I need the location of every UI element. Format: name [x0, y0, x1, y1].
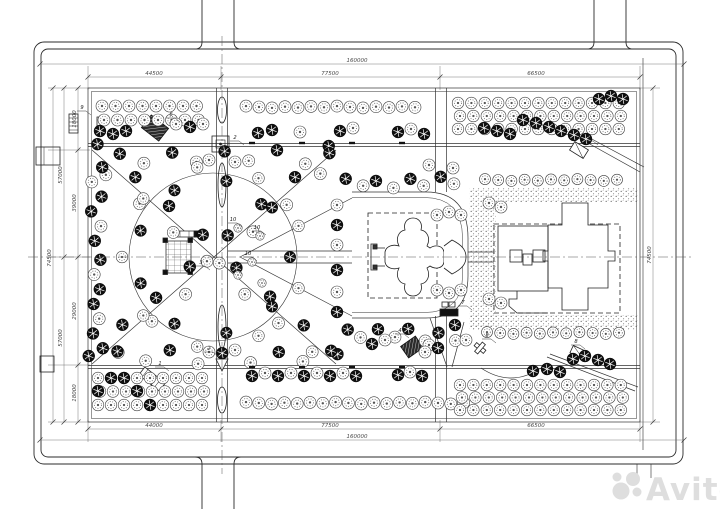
- tree-deciduous: [431, 209, 443, 221]
- tree-conifer: [554, 366, 566, 378]
- tree-conifer: [432, 327, 444, 339]
- dim-bottom-left: 44000: [145, 423, 163, 429]
- tree-deciduous: [481, 379, 493, 391]
- tree-deciduous: [537, 392, 549, 404]
- tree-deciduous: [266, 102, 278, 114]
- tree-deciduous: [357, 180, 369, 192]
- tree-deciduous: [191, 100, 203, 112]
- tree-deciduous: [448, 178, 460, 190]
- tree-conifer: [567, 353, 579, 365]
- tree-deciduous: [532, 175, 543, 186]
- tree-deciduous: [454, 404, 466, 416]
- tree-conifer: [298, 370, 310, 382]
- tree-deciduous: [447, 162, 459, 174]
- tree-deciduous: [183, 372, 195, 384]
- tree-conifer: [579, 350, 591, 362]
- gravel-band-left: [469, 188, 496, 330]
- tree-deciduous: [150, 100, 162, 112]
- tree-conifer: [97, 342, 109, 354]
- tree-deciduous: [483, 392, 495, 404]
- tree-conifer: [402, 323, 414, 335]
- svg-text:3: 3: [199, 260, 202, 266]
- tree-deciduous: [118, 399, 130, 411]
- tree-deciduous: [455, 209, 467, 221]
- tree-deciduous: [311, 367, 323, 379]
- tree-deciduous: [164, 100, 176, 112]
- narthex-tower: [373, 265, 377, 269]
- tree-conifer: [252, 127, 264, 139]
- tree-conifer: [118, 372, 130, 384]
- tree-deciduous: [494, 379, 506, 391]
- tree-conifer: [273, 346, 285, 358]
- dim-bottom-total: 160000: [347, 434, 368, 440]
- bench: [399, 142, 405, 144]
- tree-deciduous: [137, 310, 149, 322]
- dim-top-left: 44500: [145, 71, 163, 77]
- svg-text:8: 8: [574, 339, 578, 345]
- tree-conifer: [593, 93, 605, 105]
- avito-logo-dot: [633, 488, 642, 497]
- tree-conifer: [568, 129, 580, 141]
- tree-conifer: [150, 292, 162, 304]
- tree-deciduous: [347, 122, 359, 134]
- tree-deciduous: [213, 257, 225, 269]
- tree-deciduous: [452, 97, 464, 109]
- tree-deciduous: [419, 346, 431, 358]
- tree-deciduous: [600, 328, 611, 339]
- tree-conifer: [617, 93, 629, 105]
- tree-deciduous: [281, 199, 293, 211]
- tree-deciduous: [240, 396, 252, 408]
- tree-deciduous: [297, 355, 309, 367]
- tree-deciduous: [253, 101, 265, 113]
- tree-deciduous: [548, 379, 560, 391]
- tree-deciduous: [449, 335, 461, 347]
- tree-deciduous: [615, 404, 627, 416]
- tree-deciduous: [317, 397, 329, 409]
- pavilion-kiosk-center: [220, 143, 222, 145]
- tree-deciduous: [409, 101, 421, 113]
- tree-conifer: [222, 229, 234, 241]
- tree-conifer: [105, 372, 117, 384]
- tree-conifer: [111, 345, 123, 357]
- tree-conifer: [366, 338, 378, 350]
- avito-logo-dot: [613, 483, 630, 500]
- stage-platform: [440, 309, 458, 316]
- tree-conifer: [246, 370, 258, 382]
- bench: [299, 142, 305, 144]
- tree-deciduous: [588, 404, 600, 416]
- svg-text:10: 10: [254, 225, 261, 231]
- tree-deciduous: [253, 330, 265, 342]
- tree-deciduous: [614, 327, 625, 338]
- tree-deciduous: [493, 175, 504, 186]
- bench: [249, 142, 255, 144]
- tree-conifer: [169, 185, 181, 197]
- tree-deciduous: [387, 182, 399, 194]
- dim-left-seg1: 18000: [72, 110, 78, 128]
- tree-conifer: [96, 161, 108, 173]
- tree-conifer: [221, 327, 233, 339]
- tree-conifer: [435, 171, 447, 183]
- tree-deciduous: [575, 379, 587, 391]
- dim-top-right: 66500: [527, 71, 545, 77]
- tree-deciduous: [337, 367, 349, 379]
- tree-deciduous: [304, 396, 316, 408]
- tree-deciduous: [479, 97, 491, 109]
- tree-deciduous: [548, 327, 559, 338]
- tree-deciduous: [234, 271, 242, 279]
- tree-deciduous: [253, 397, 265, 409]
- tree-conifer: [418, 128, 430, 140]
- bench: [299, 366, 305, 368]
- tree-conifer: [370, 175, 382, 187]
- tree-deciduous: [293, 220, 305, 232]
- tree-conifer: [478, 122, 490, 134]
- tree-conifer: [271, 144, 283, 156]
- palace-annex: [509, 291, 548, 313]
- svg-text:10: 10: [230, 217, 237, 223]
- tree-conifer: [527, 365, 539, 377]
- tree-deciduous: [590, 392, 602, 404]
- tree-conifer: [517, 114, 529, 126]
- tree-deciduous: [279, 101, 291, 113]
- tree-deciduous: [573, 97, 585, 109]
- tree-deciduous: [370, 101, 382, 113]
- tree-deciduous: [185, 386, 197, 398]
- tree-conifer: [323, 147, 335, 159]
- tree-deciduous: [170, 399, 182, 411]
- tree-deciduous: [137, 100, 149, 112]
- tree-deciduous: [203, 154, 215, 166]
- tree-deciduous: [344, 101, 356, 113]
- tree-conifer: [541, 363, 553, 375]
- tree-deciduous: [495, 201, 507, 213]
- tree-deciduous: [172, 386, 184, 398]
- tree-deciduous: [404, 366, 416, 378]
- tree-deciduous: [293, 282, 305, 294]
- tree-deciduous: [243, 155, 255, 167]
- svg-text:10: 10: [230, 264, 237, 270]
- tree-deciduous: [510, 392, 522, 404]
- tree-deciduous: [305, 100, 317, 112]
- bench: [399, 366, 405, 368]
- tree-deciduous: [331, 199, 343, 211]
- tree-deciduous: [253, 172, 265, 184]
- tree-conifer: [350, 370, 362, 382]
- tree-deciduous: [546, 174, 557, 185]
- tree-conifer: [107, 128, 119, 140]
- tree-deciduous: [468, 404, 480, 416]
- tree-conifer: [334, 125, 346, 137]
- tree-deciduous: [406, 397, 418, 409]
- tree-deciduous: [561, 379, 573, 391]
- tree-deciduous: [93, 313, 105, 325]
- tree-deciduous: [368, 397, 380, 409]
- tree-deciduous: [506, 97, 518, 109]
- tree-deciduous: [229, 344, 241, 356]
- svg-text:2: 2: [233, 135, 236, 141]
- tree-deciduous: [110, 100, 122, 112]
- tree-deciduous: [197, 118, 209, 130]
- tree-deciduous: [533, 97, 545, 109]
- tree-conifer: [289, 171, 301, 183]
- tree-conifer: [163, 200, 175, 212]
- tree-deciduous: [191, 341, 203, 353]
- tree-conifer: [114, 148, 126, 160]
- tree-conifer: [116, 319, 128, 331]
- tree-deciduous: [455, 284, 467, 296]
- tree-conifer: [83, 350, 95, 362]
- callout-label: 9: [77, 105, 91, 115]
- tree-conifer: [331, 306, 343, 318]
- dim-left-chain-a: 57000: [58, 166, 64, 184]
- tree-deciduous: [273, 317, 285, 329]
- tree-deciduous: [131, 372, 143, 384]
- tree-deciduous: [423, 159, 435, 171]
- gravel-band-top: [496, 188, 638, 202]
- roadside-building: [36, 147, 60, 165]
- tree-deciduous: [546, 97, 558, 109]
- callout-label: 1: [155, 361, 169, 371]
- tree-deciduous: [561, 404, 573, 416]
- tree-deciduous: [98, 114, 110, 126]
- tree-deciduous: [123, 100, 135, 112]
- tree-deciduous: [550, 392, 562, 404]
- tree-deciduous: [496, 392, 508, 404]
- tree-deciduous: [612, 174, 623, 185]
- tree-deciduous: [170, 118, 182, 130]
- tree-deciduous: [331, 239, 343, 251]
- tree-deciduous: [92, 372, 104, 384]
- tree-deciduous: [559, 97, 571, 109]
- dim-top-mid: 77500: [321, 71, 339, 77]
- tree-deciduous: [285, 367, 297, 379]
- tree-deciduous: [196, 399, 208, 411]
- tree-deciduous: [506, 175, 517, 186]
- tree-deciduous: [394, 396, 406, 408]
- tree-deciduous: [481, 110, 493, 122]
- tree-deciduous: [167, 226, 179, 238]
- tree-deciduous: [460, 334, 472, 346]
- tree-deciduous: [96, 100, 108, 112]
- tree-deciduous: [481, 404, 493, 416]
- tree-deciduous: [585, 175, 596, 186]
- tree-deciduous: [615, 379, 627, 391]
- dim-left-chain-b: 57000: [58, 329, 64, 347]
- tree-conifer: [184, 121, 196, 133]
- svg-text:2: 2: [207, 346, 210, 352]
- callouts-layer: 9621010101031248758: [77, 105, 598, 371]
- tree-deciduous: [521, 379, 533, 391]
- tree-deciduous: [92, 399, 104, 411]
- bench: [249, 366, 255, 368]
- tree-deciduous: [431, 284, 443, 296]
- tree-deciduous: [495, 297, 507, 309]
- tree-conifer: [340, 173, 352, 185]
- tree-conifer: [331, 219, 343, 231]
- tree-deciduous: [120, 386, 132, 398]
- dim-top-total: 160000: [347, 58, 368, 64]
- tree-deciduous: [112, 114, 124, 126]
- small-structure-plaza-south: [472, 340, 489, 357]
- tree-conifer: [89, 235, 101, 247]
- tree-conifer: [266, 124, 278, 136]
- tree-deciduous: [405, 123, 417, 135]
- tree-deciduous: [292, 102, 304, 114]
- tree-deciduous: [577, 392, 589, 404]
- tree-conifer: [324, 370, 336, 382]
- tree-conifer: [92, 385, 104, 397]
- tree-deciduous: [535, 379, 547, 391]
- svg-text:7: 7: [461, 300, 465, 306]
- tree-deciduous: [587, 328, 598, 339]
- tree-conifer: [392, 369, 404, 381]
- tree-conifer: [604, 358, 616, 370]
- tree-conifer: [342, 324, 354, 336]
- tree-deciduous: [357, 102, 369, 114]
- tree-deciduous: [170, 372, 182, 384]
- tree-deciduous: [598, 175, 609, 186]
- tree-deciduous: [105, 399, 117, 411]
- palace-footprint: [543, 203, 615, 310]
- site-plan-drawing: 160000 44500 77500 66500 44000 77500 665…: [0, 0, 720, 509]
- tree-deciduous: [259, 367, 271, 379]
- tree-deciduous: [355, 331, 367, 343]
- tree-deciduous: [495, 328, 506, 339]
- tree-conifer: [331, 264, 343, 276]
- tree-deciduous: [355, 398, 367, 410]
- tree-deciduous: [508, 328, 519, 339]
- tree-deciduous: [125, 114, 137, 126]
- tree-deciduous: [466, 97, 478, 109]
- stage-booth: [442, 302, 448, 307]
- tree-conifer: [88, 298, 100, 310]
- tree-deciduous: [600, 123, 612, 135]
- tree-conifer: [91, 138, 103, 150]
- tree-deciduous: [291, 398, 303, 410]
- tree-deciduous: [523, 392, 535, 404]
- tree-deciduous: [483, 197, 495, 209]
- tree-deciduous: [140, 355, 152, 367]
- svg-text:10: 10: [245, 251, 252, 257]
- tree-conifer: [392, 126, 404, 138]
- tree-deciduous: [198, 386, 210, 398]
- tree-deciduous: [521, 404, 533, 416]
- tree-deciduous: [604, 392, 616, 404]
- dim-bottom-right: 66500: [527, 423, 545, 429]
- tree-conifer: [491, 125, 503, 137]
- tree-deciduous: [299, 158, 311, 170]
- tree-deciduous: [192, 358, 204, 370]
- tree-deciduous: [535, 404, 547, 416]
- tree-deciduous: [602, 379, 614, 391]
- tree-conifer: [85, 205, 97, 217]
- tree-deciduous: [602, 110, 614, 122]
- tree-deciduous: [456, 392, 468, 404]
- bench: [349, 366, 355, 368]
- tree-conifer: [94, 254, 106, 266]
- tree-conifer: [129, 171, 141, 183]
- tree-deciduous: [615, 110, 627, 122]
- tree-conifer: [592, 354, 604, 366]
- tree-deciduous: [521, 327, 532, 338]
- tree-deciduous: [314, 168, 326, 180]
- narthex-tower: [373, 245, 377, 249]
- tree-deciduous: [159, 386, 171, 398]
- tree-deciduous: [331, 286, 343, 298]
- tree-deciduous: [492, 97, 504, 109]
- svg-text:1: 1: [158, 361, 161, 367]
- tree-conifer: [266, 301, 278, 313]
- tree-conifer: [543, 121, 555, 133]
- tree-conifer: [605, 90, 617, 102]
- tree-conifer: [255, 198, 267, 210]
- dim-bottom-mid: 77500: [321, 423, 339, 429]
- dim-left-total: 74500: [47, 249, 53, 267]
- tree-conifer: [530, 117, 542, 129]
- tree-deciduous: [146, 386, 158, 398]
- tree-deciduous: [342, 397, 354, 409]
- tree-deciduous: [144, 372, 156, 384]
- tree-deciduous: [278, 397, 290, 409]
- bottom-street-stub: [195, 457, 241, 509]
- tree-deciduous: [468, 110, 480, 122]
- avito-watermark: Avito: [613, 472, 720, 508]
- palace-court-block: [523, 254, 532, 265]
- tree-deciduous: [452, 123, 464, 135]
- tree-conifer: [96, 191, 108, 203]
- tree-conifer: [135, 225, 147, 237]
- tree-deciduous: [191, 162, 203, 174]
- tree-deciduous: [466, 123, 478, 135]
- tree-deciduous: [229, 156, 241, 168]
- tree-deciduous: [196, 372, 208, 384]
- avito-watermark-text: Avito: [646, 472, 720, 508]
- tree-conifer: [266, 202, 278, 214]
- tree-deciduous: [494, 404, 506, 416]
- tree-deciduous: [331, 100, 343, 112]
- tree-deciduous: [617, 392, 629, 404]
- tree-deciduous: [454, 379, 466, 391]
- tree-deciduous: [234, 224, 242, 232]
- tree-deciduous: [256, 232, 264, 240]
- tree-conifer: [120, 125, 132, 137]
- tree-conifer: [135, 278, 147, 290]
- tree-deciduous: [613, 123, 625, 135]
- tree-deciduous: [574, 327, 585, 338]
- tree-conifer: [166, 147, 178, 159]
- tree-conifer: [219, 145, 231, 157]
- tree-deciduous: [131, 399, 143, 411]
- tree-deciduous: [519, 97, 531, 109]
- tree-deciduous: [180, 288, 192, 300]
- dim-left-seg3: 29000: [72, 302, 78, 320]
- tree-deciduous: [443, 287, 455, 299]
- tree-deciduous: [483, 293, 495, 305]
- tree-deciduous: [95, 220, 107, 232]
- roadside-building: [40, 356, 54, 372]
- avito-logo-dot: [626, 472, 640, 486]
- tree-deciduous: [152, 114, 164, 126]
- tree-deciduous: [157, 399, 169, 411]
- tree-deciduous: [137, 193, 149, 205]
- tree-deciduous: [561, 328, 572, 339]
- tree-deciduous: [318, 101, 330, 113]
- tree-conifer: [416, 370, 428, 382]
- tree-deciduous: [239, 288, 251, 300]
- tree-deciduous: [575, 110, 587, 122]
